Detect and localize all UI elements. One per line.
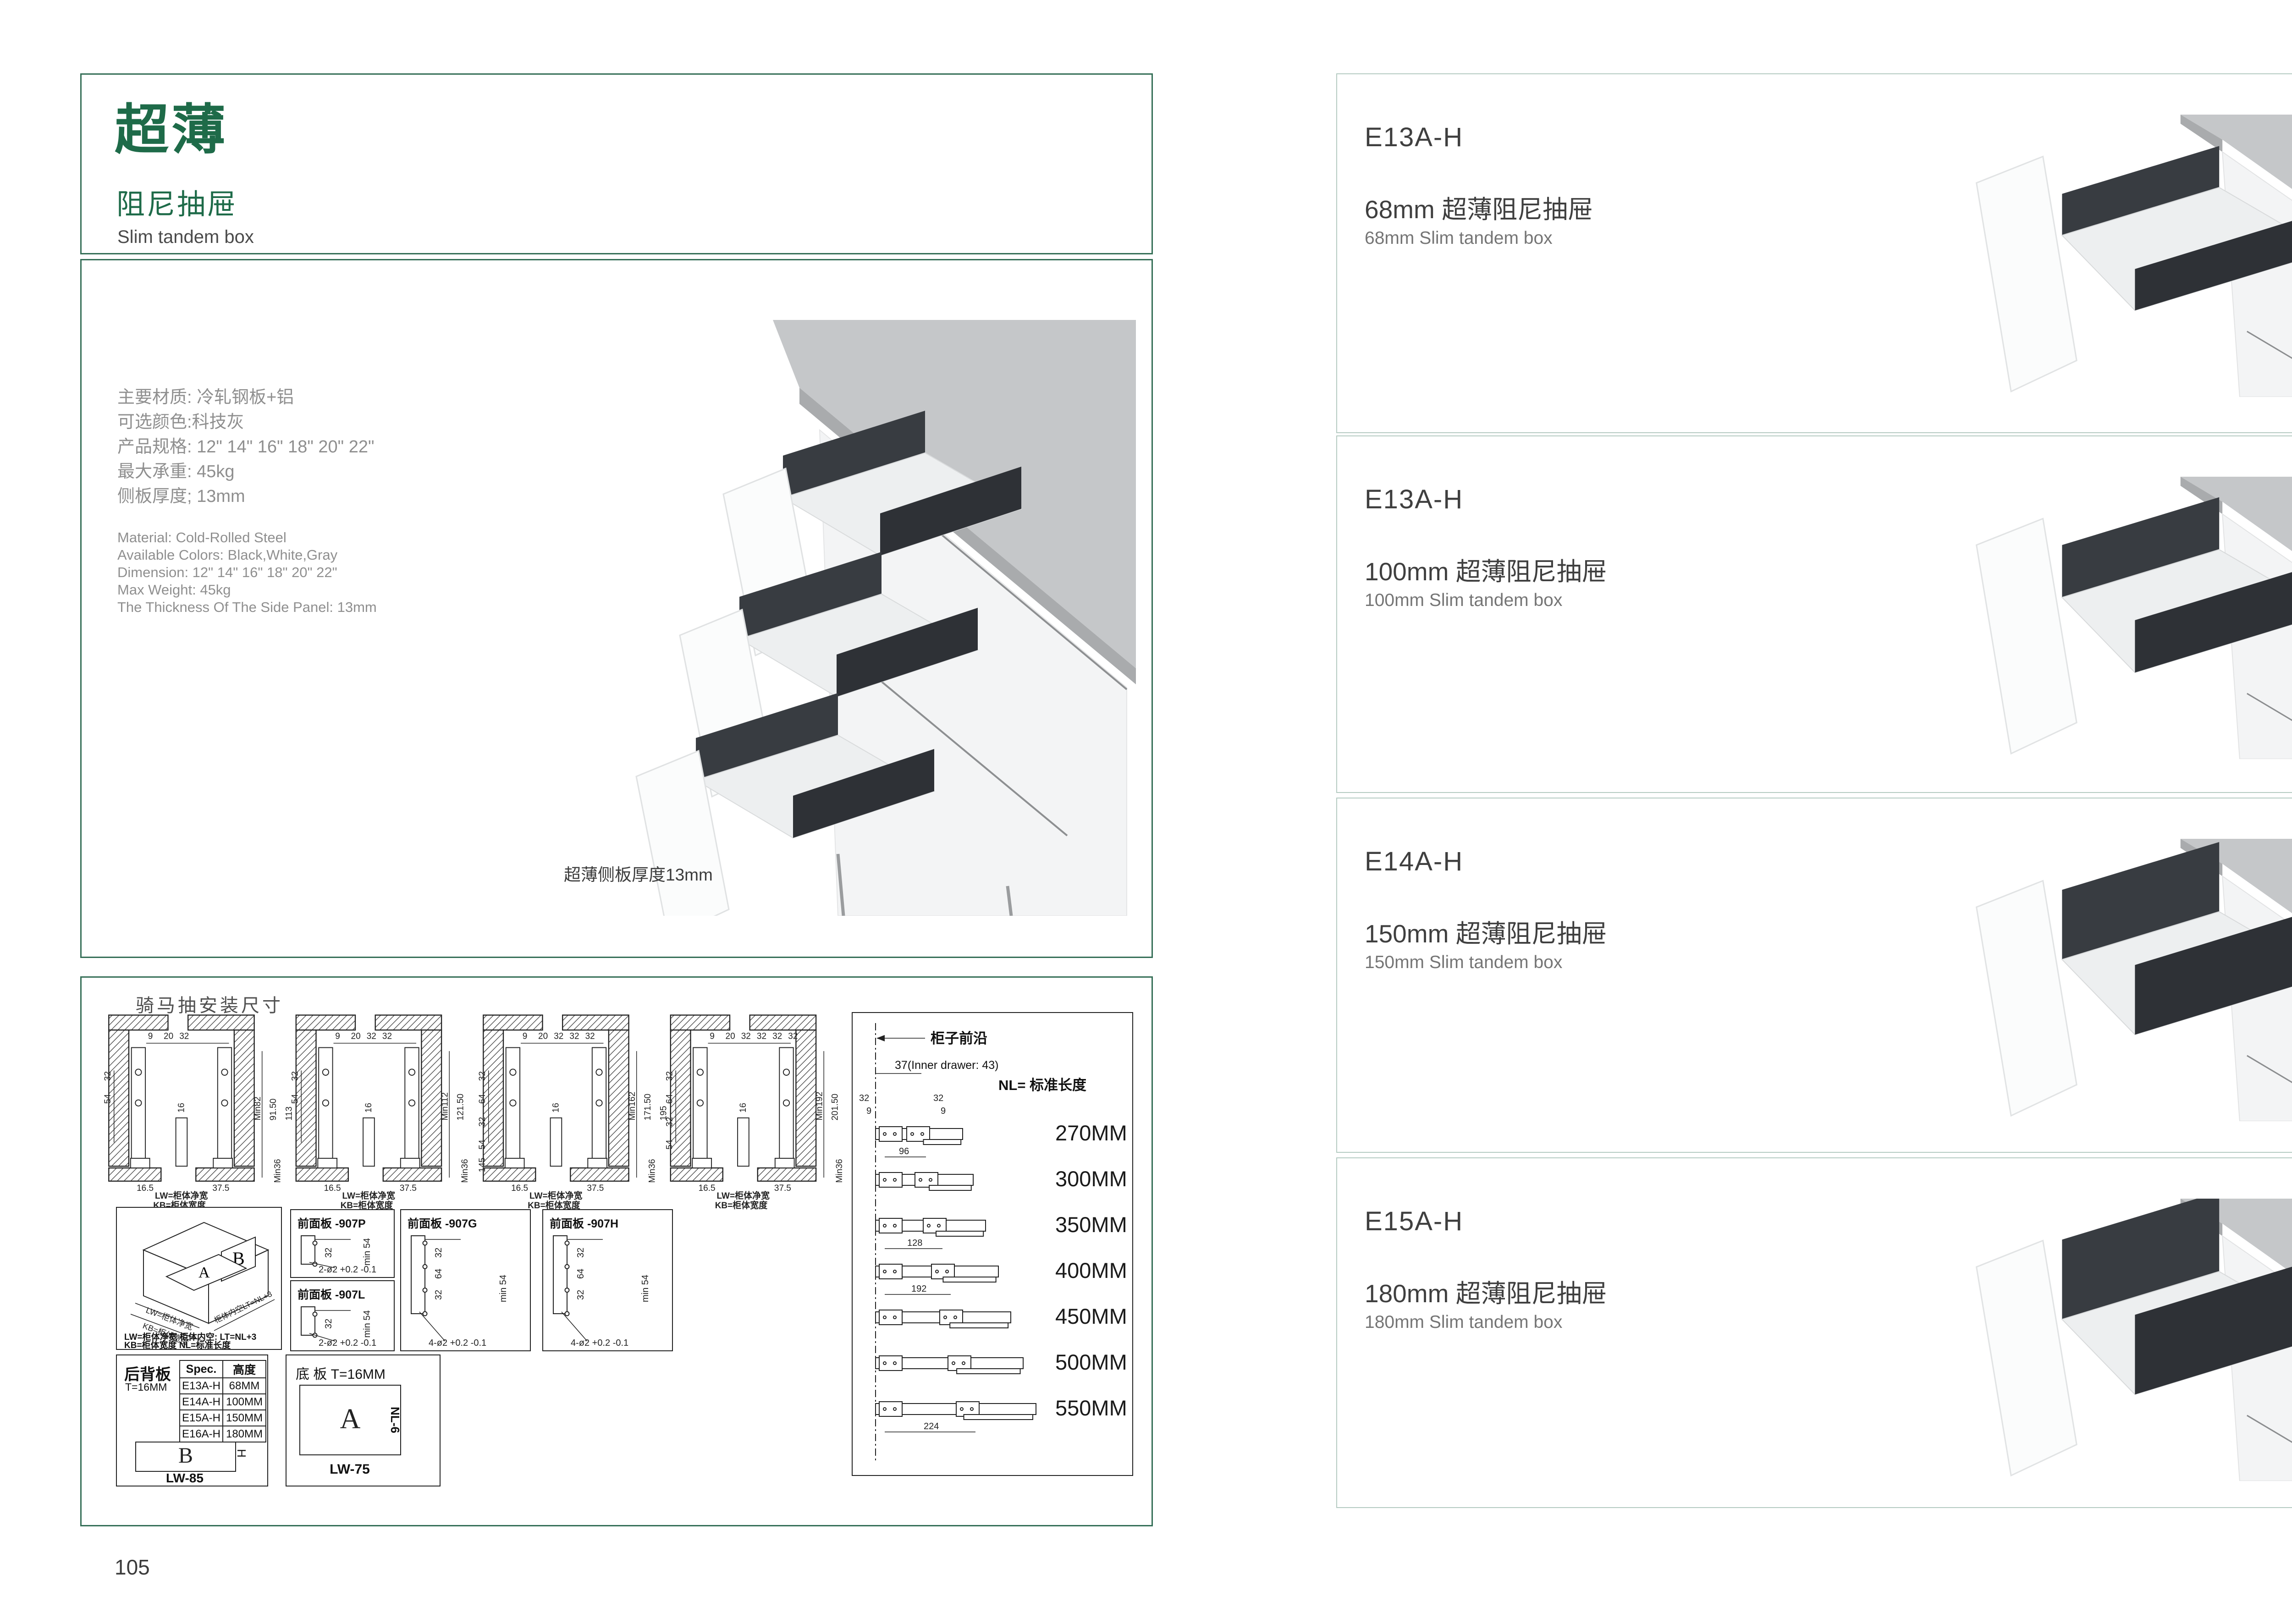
- product-name-en: 150mm Slim tandem box: [1365, 952, 1562, 973]
- svg-text:450MM: 450MM: [1055, 1304, 1127, 1328]
- front-panel-title: 前面板 -907G: [401, 1210, 530, 1231]
- svg-text:192: 192: [911, 1284, 926, 1294]
- product-name-en: 180mm Slim tandem box: [1365, 1312, 1562, 1332]
- svg-text:16.5: 16.5: [137, 1184, 154, 1193]
- svg-text:64: 64: [665, 1094, 675, 1104]
- svg-text:32: 32: [478, 1071, 487, 1081]
- svg-text:64: 64: [478, 1094, 487, 1104]
- back-panel-width-label: LW-85: [117, 1471, 253, 1486]
- svg-text:Min36: Min36: [648, 1159, 657, 1183]
- product-name-cn: 180mm 超薄阻尼抽屉: [1365, 1273, 1607, 1310]
- svg-text:32: 32: [741, 1031, 751, 1041]
- svg-text:32: 32: [478, 1117, 487, 1127]
- svg-text:9: 9: [941, 1106, 946, 1116]
- spec-line-cn: 可选颜色:科技灰: [117, 410, 377, 435]
- svg-text:min 54: min 54: [362, 1238, 372, 1266]
- svg-text:54: 54: [291, 1094, 300, 1104]
- svg-text:37.5: 37.5: [774, 1184, 791, 1193]
- svg-text:LW=柜体净宽: LW=柜体净宽: [342, 1190, 396, 1201]
- svg-text:113: 113: [284, 1107, 294, 1121]
- svg-text:20: 20: [351, 1031, 361, 1041]
- spec-line-cn: 主要材质: 冷轧钢板+铝: [117, 385, 377, 410]
- back-panel-thickness: T=16MM: [125, 1381, 167, 1393]
- front-panel-title: 前面板 -907H: [543, 1210, 672, 1231]
- install-box: 骑马抽安装尺寸 16 16.5 37.5 Min36 LW=柜体净宽 KB=柜体…: [80, 976, 1153, 1526]
- svg-text:37.5: 37.5: [587, 1184, 604, 1193]
- svg-text:32: 32: [103, 1071, 113, 1081]
- svg-text:LW=柜体净宽: LW=柜体净宽: [529, 1190, 583, 1201]
- bottom-panel-width-label: LW-75: [286, 1462, 413, 1477]
- svg-text:32: 32: [324, 1319, 334, 1329]
- svg-text:32: 32: [179, 1031, 189, 1041]
- svg-text:9: 9: [523, 1031, 528, 1041]
- product-box: E14A-H 150mm 超薄阻尼抽屉 150mm Slim tandem bo…: [1336, 798, 2292, 1153]
- product-name-en: 68mm Slim tandem box: [1365, 228, 1553, 248]
- bottom-panel-h-label: NL-6: [388, 1407, 402, 1433]
- rail-length-panel: 柜子前沿 37(Inner drawer: 43) NL= 标准长度 32 9 …: [852, 1012, 1133, 1476]
- spec-lines-cn: 主要材质: 冷轧钢板+铝可选颜色:科技灰产品规格: 12" 14" 16" 18…: [117, 385, 377, 509]
- svg-text:145: 145: [478, 1158, 487, 1173]
- svg-text:16.5: 16.5: [699, 1184, 716, 1193]
- svg-text:121.50: 121.50: [456, 1094, 466, 1121]
- svg-text:20: 20: [726, 1031, 735, 1041]
- svg-text:64: 64: [434, 1269, 444, 1279]
- spec-line-cn: 侧板厚度; 13mm: [117, 484, 377, 509]
- spec-line-en: Dimension: 12" 14" 16" 18" 20" 22": [117, 564, 377, 581]
- svg-text:32: 32: [367, 1031, 376, 1041]
- page-number-left: 105: [115, 1555, 150, 1580]
- svg-text:32: 32: [291, 1071, 300, 1081]
- spec-block: 主要材质: 冷轧钢板+铝可选颜色:科技灰产品规格: 12" 14" 16" 18…: [117, 385, 377, 616]
- svg-text:min 54: min 54: [640, 1275, 650, 1302]
- product-photo: [1924, 839, 2292, 1121]
- svg-text:min 54: min 54: [362, 1310, 372, 1338]
- spec-line-en: Material: Cold-Rolled Steel: [117, 529, 377, 546]
- iso-legend-2: KB=柜体宽度 NL=标准长度: [124, 1340, 231, 1349]
- product-code: E13A-H: [1365, 484, 1463, 515]
- svg-text:32: 32: [576, 1248, 586, 1258]
- svg-text:32: 32: [434, 1248, 444, 1258]
- svg-text:KB=柜体宽度: KB=柜体宽度: [715, 1200, 768, 1211]
- svg-text:9: 9: [866, 1106, 871, 1116]
- product-photo: [1924, 1199, 2292, 1481]
- svg-text:Min36: Min36: [835, 1159, 843, 1183]
- front-panel-diagram: 前面板 -907H 326432 min 54 4-ø2 +0.2 -0.1: [542, 1209, 673, 1351]
- front-panel-diagram: 前面板 -907L 32 min 54 2-ø2 +0.2 -0.1: [290, 1280, 395, 1351]
- svg-text:Min192: Min192: [815, 1092, 824, 1121]
- front-panel-diagram: 前面板 -907P 32 min 54 2-ø2 +0.2 -0.1: [290, 1209, 395, 1278]
- svg-text:54: 54: [103, 1094, 113, 1104]
- svg-text:16: 16: [177, 1103, 187, 1112]
- iso-lt-label: 柜体内空LT=NL+3: [213, 1289, 273, 1325]
- svg-text:32: 32: [859, 1093, 869, 1103]
- bottom-panel-rect: A: [299, 1385, 401, 1455]
- svg-text:16.5: 16.5: [324, 1184, 341, 1193]
- svg-text:32: 32: [757, 1031, 766, 1041]
- svg-text:500MM: 500MM: [1055, 1350, 1127, 1374]
- svg-text:Min36: Min36: [273, 1159, 283, 1183]
- drawer-stack-illustration: [545, 320, 1136, 916]
- nl-front-edge: 柜子前沿: [931, 1030, 987, 1046]
- left-main-box: 主要材质: 冷轧钢板+铝可选颜色:科技灰产品规格: 12" 14" 16" 18…: [80, 259, 1153, 958]
- svg-text:32: 32: [576, 1290, 586, 1300]
- product-photo: [1924, 115, 2292, 397]
- svg-text:32: 32: [434, 1290, 444, 1300]
- svg-text:128: 128: [907, 1238, 922, 1248]
- front-panel-title: 前面板 -907P: [291, 1210, 394, 1231]
- back-panel-box: 后背板 T=16MM Spec.高度E13A-H68MME14A-H100MME…: [116, 1354, 268, 1486]
- product-box: E13A-H 68mm 超薄阻尼抽屉 68mm Slim tandem box: [1336, 73, 2292, 433]
- spec-line-en: Max Weight: 45kg: [117, 581, 377, 599]
- back-panel-letter: B: [136, 1442, 235, 1469]
- product-box: E13A-H 100mm 超薄阻尼抽屉 100mm Slim tandem bo…: [1336, 435, 2292, 793]
- svg-text:4-ø2 +0.2 -0.1: 4-ø2 +0.2 -0.1: [429, 1338, 486, 1348]
- svg-text:16: 16: [738, 1103, 748, 1112]
- svg-text:32: 32: [665, 1071, 675, 1081]
- page-subtitle: 阻尼抽屉: [116, 181, 237, 222]
- cross-sections: 16 16.5 37.5 Min36 LW=柜体净宽 KB=柜体宽度 92032…: [103, 1011, 843, 1211]
- svg-text:400MM: 400MM: [1055, 1258, 1127, 1283]
- product-photo: [1924, 477, 2292, 759]
- spec-line-en: Available Colors: Black,White,Gray: [117, 546, 377, 564]
- svg-text:171.50: 171.50: [643, 1094, 653, 1121]
- svg-text:9: 9: [148, 1031, 153, 1041]
- svg-text:20: 20: [538, 1031, 548, 1041]
- nl-inner-offset: 37(Inner drawer: 43): [895, 1059, 999, 1072]
- svg-text:LW=柜体净宽: LW=柜体净宽: [155, 1190, 208, 1201]
- svg-text:32: 32: [382, 1031, 392, 1041]
- page-title: 超薄: [115, 103, 228, 157]
- svg-text:91.50: 91.50: [269, 1099, 278, 1121]
- back-panel-spec-table: Spec.高度E13A-H68MME14A-H100MME15A-H150MME…: [179, 1360, 266, 1442]
- svg-text:16: 16: [551, 1103, 561, 1112]
- svg-text:9: 9: [335, 1031, 340, 1041]
- catalog-spread: 超薄 阻尼抽屉 Slim tandem box 主要材质: 冷轧钢板+铝可选颜色…: [0, 0, 2292, 1624]
- svg-text:16.5: 16.5: [511, 1184, 528, 1193]
- svg-text:37.5: 37.5: [400, 1184, 417, 1193]
- svg-text:32: 32: [324, 1248, 334, 1258]
- svg-text:4-ø2 +0.2 -0.1: 4-ø2 +0.2 -0.1: [571, 1338, 628, 1348]
- product-name-cn: 68mm 超薄阻尼抽屉: [1365, 189, 1593, 226]
- svg-text:550MM: 550MM: [1055, 1396, 1127, 1420]
- svg-text:LW=柜体净宽: LW=柜体净宽: [717, 1190, 770, 1201]
- svg-text:20: 20: [164, 1031, 173, 1041]
- page-subtitle-en: Slim tandem box: [117, 227, 254, 248]
- svg-text:32: 32: [772, 1031, 782, 1041]
- spec-line-cn: 最大承重: 45kg: [117, 459, 377, 484]
- bottom-panel-title: 底 板 T=16MM: [296, 1363, 386, 1383]
- left-title-box: 超薄 阻尼抽屉 Slim tandem box: [80, 73, 1153, 254]
- svg-text:96: 96: [899, 1146, 909, 1156]
- photo-caption: 超薄侧板厚度13mm: [564, 861, 713, 886]
- product-code: E15A-H: [1365, 1206, 1463, 1237]
- svg-text:Min36: Min36: [460, 1159, 470, 1183]
- bottom-panel-box: 底 板 T=16MM A NL-6 LW-75: [286, 1354, 441, 1486]
- svg-text:224: 224: [924, 1421, 939, 1431]
- svg-text:54: 54: [665, 1140, 675, 1150]
- bottom-panel-letter: A: [300, 1386, 400, 1453]
- svg-text:37.5: 37.5: [212, 1184, 229, 1193]
- svg-text:Min112: Min112: [440, 1092, 450, 1120]
- svg-text:350MM: 350MM: [1055, 1212, 1127, 1237]
- svg-text:16: 16: [364, 1103, 374, 1112]
- svg-text:32: 32: [665, 1117, 675, 1127]
- front-panel-title: 前面板 -907L: [291, 1281, 394, 1302]
- svg-text:Min162: Min162: [628, 1092, 637, 1121]
- svg-text:54: 54: [478, 1140, 487, 1150]
- product-code: E14A-H: [1365, 846, 1463, 877]
- svg-text:32: 32: [585, 1031, 595, 1041]
- svg-text:2-ø2 +0.2 -0.1: 2-ø2 +0.2 -0.1: [319, 1265, 376, 1275]
- svg-text:Min82: Min82: [253, 1096, 263, 1120]
- iso-diagram: B A LW=柜体净宽 KB=柜体宽度 柜体内空LT=NL+3 LW=柜体净宽 …: [116, 1207, 282, 1350]
- svg-text:9: 9: [710, 1031, 715, 1041]
- back-panel-rect: B: [135, 1442, 236, 1472]
- spec-line-cn: 产品规格: 12" 14" 16" 18" 20" 22": [117, 435, 377, 459]
- svg-text:300MM: 300MM: [1055, 1167, 1127, 1191]
- svg-text:32: 32: [788, 1031, 798, 1041]
- iso-letter-a: A: [198, 1264, 210, 1281]
- product-box: E15A-H 180mm 超薄阻尼抽屉 180mm Slim tandem bo…: [1336, 1157, 2292, 1508]
- front-panel-diagram: 前面板 -907G 326432 min 54 4-ø2 +0.2 -0.1: [400, 1209, 531, 1351]
- svg-text:min 54: min 54: [498, 1275, 508, 1302]
- svg-text:201.50: 201.50: [831, 1094, 840, 1121]
- svg-text:32: 32: [569, 1031, 579, 1041]
- product-code: E13A-H: [1365, 122, 1463, 153]
- spec-lines-en: Material: Cold-Rolled SteelAvailable Col…: [117, 529, 377, 616]
- hero-photo: 超薄侧板厚度13mm: [545, 320, 1136, 916]
- nl-standard-length: NL= 标准长度: [998, 1077, 1086, 1093]
- svg-text:270MM: 270MM: [1055, 1121, 1127, 1145]
- product-name-cn: 100mm 超薄阻尼抽屉: [1365, 551, 1607, 588]
- svg-text:64: 64: [576, 1269, 586, 1279]
- back-panel-h-label: H: [234, 1449, 248, 1458]
- svg-text:32: 32: [554, 1031, 563, 1041]
- spec-line-en: The Thickness Of The Side Panel: 13mm: [117, 599, 377, 616]
- svg-text:32: 32: [933, 1093, 943, 1103]
- svg-text:2-ø2 +0.2 -0.1: 2-ø2 +0.2 -0.1: [319, 1338, 376, 1348]
- product-name-cn: 150mm 超薄阻尼抽屉: [1365, 913, 1607, 950]
- product-name-en: 100mm Slim tandem box: [1365, 590, 1562, 611]
